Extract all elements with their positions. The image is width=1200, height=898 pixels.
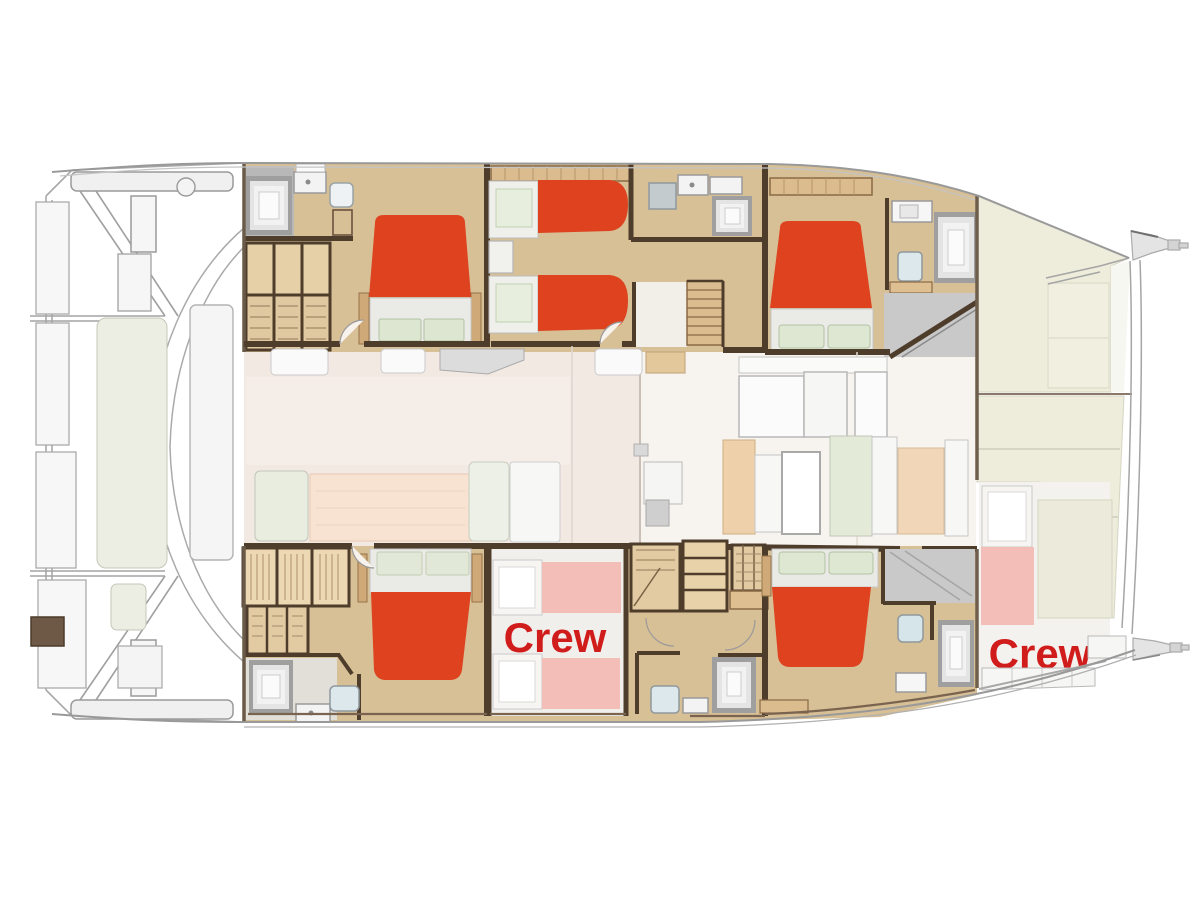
svg-text:Crew: Crew (504, 614, 607, 661)
